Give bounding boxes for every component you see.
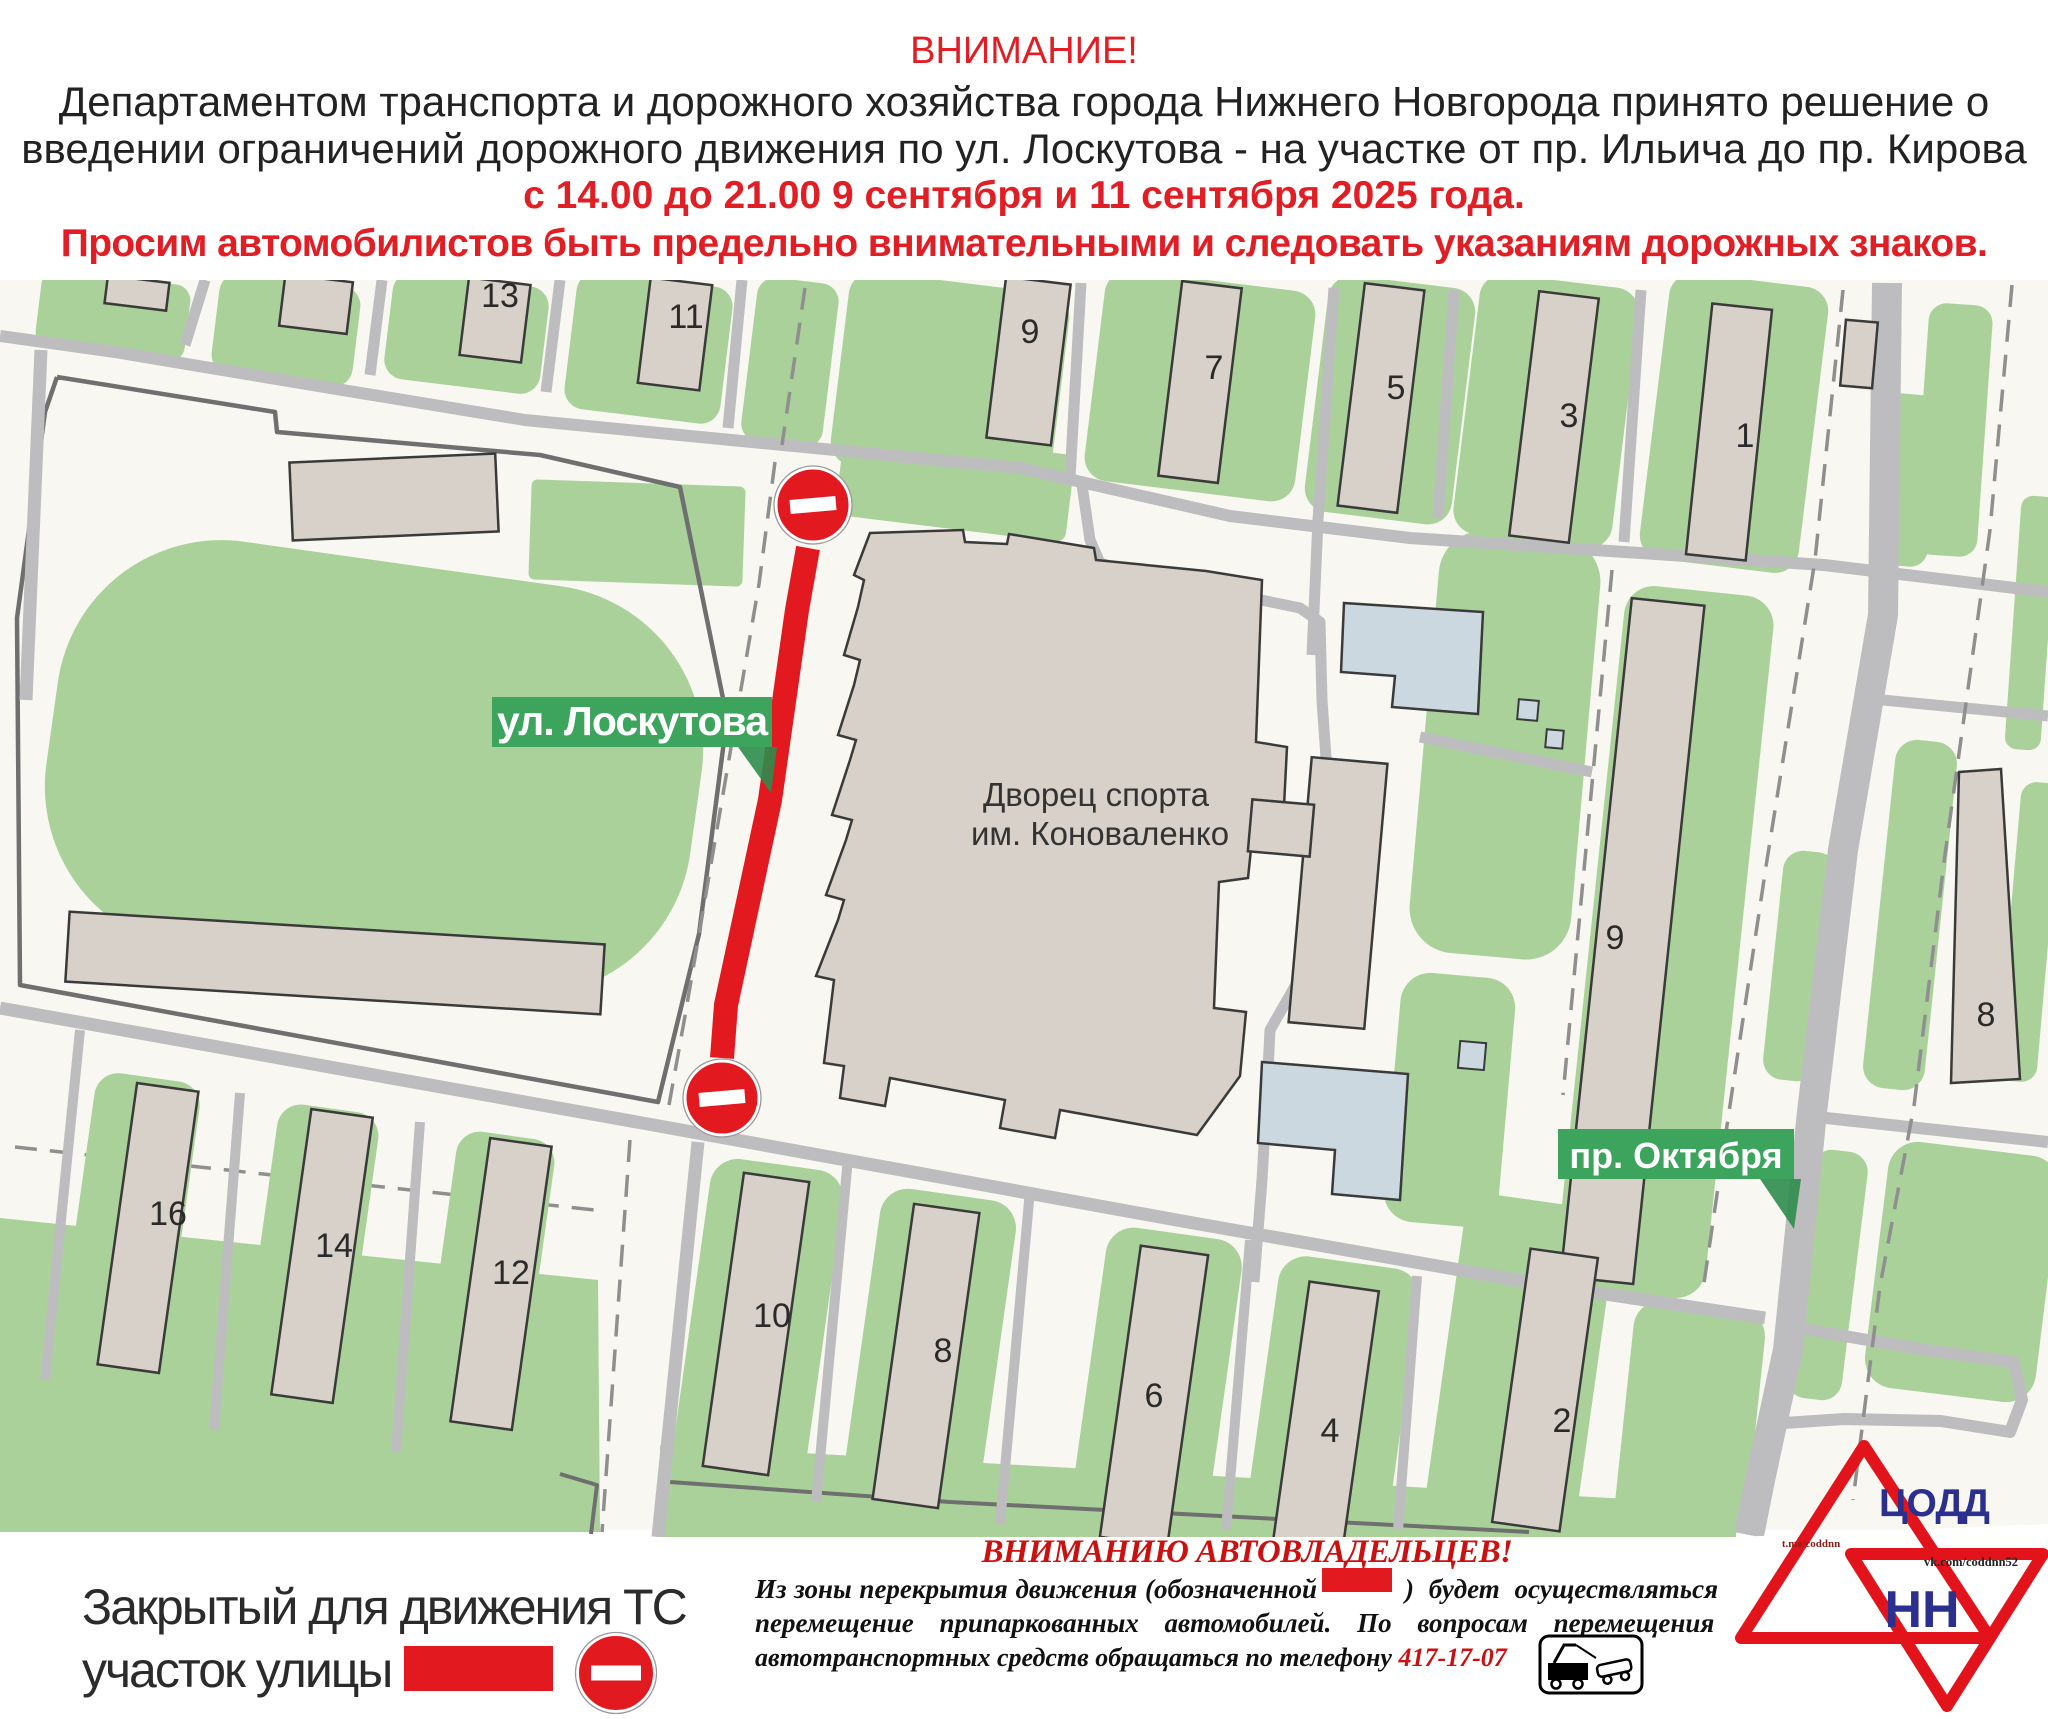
svg-text:ул. Лоскутова: ул. Лоскутова [497, 698, 769, 744]
svg-text:2: 2 [1553, 1402, 1572, 1440]
svg-text:t.me/coddnn: t.me/coddnn [1782, 1538, 1840, 1550]
svg-text:10: 10 [753, 1297, 791, 1335]
svg-text:НН: НН [1884, 1581, 1959, 1639]
svg-text:ЦОДД: ЦОДД [1879, 1482, 1990, 1525]
svg-text:3: 3 [1560, 397, 1579, 435]
svg-text:1: 1 [1736, 417, 1755, 455]
svg-text:vk.com/coddnn52: vk.com/coddnn52 [1924, 1555, 2018, 1569]
svg-text:им. Коноваленко: им. Коноваленко [971, 815, 1229, 852]
svg-text:автотранспортных средств обращ: автотранспортных средств обращаться по т… [755, 1643, 1508, 1672]
svg-text:Из зоны перекрытия движения (о: Из зоны перекрытия движения (обозначенно… [754, 1574, 1344, 1604]
svg-text:9: 9 [1021, 313, 1040, 351]
svg-text:8: 8 [1977, 996, 1996, 1034]
svg-text:14: 14 [315, 1227, 353, 1265]
svg-text:Закрытый для движения ТС: Закрытый для движения ТС [82, 1579, 687, 1635]
svg-text:7: 7 [1205, 349, 1224, 387]
svg-text:13: 13 [481, 277, 519, 315]
svg-text:4: 4 [1321, 1412, 1340, 1450]
svg-text:12: 12 [492, 1254, 530, 1292]
svg-text:6: 6 [1145, 1377, 1164, 1415]
svg-text:перемещение припаркованных авт: перемещение припаркованных автомобилей. … [755, 1608, 1714, 1638]
svg-text:пр. Октября: пр. Октября [1569, 1135, 1782, 1176]
svg-text:8: 8 [934, 1332, 953, 1370]
svg-text:16: 16 [149, 1195, 187, 1233]
svg-text:Дворец спорта: Дворец спорта [983, 776, 1210, 813]
svg-text:) будет осуществляться: ) будет осуществляться [1402, 1574, 1718, 1604]
svg-text:9: 9 [1606, 919, 1625, 957]
svg-text:участок улицы -: участок улицы - [82, 1642, 418, 1698]
svg-text:5: 5 [1387, 369, 1406, 407]
svg-text:11: 11 [668, 298, 703, 336]
svg-text:ВНИМАНИЮ АВТОВЛАДЕЛЬЦЕВ!: ВНИМАНИЮ АВТОВЛАДЕЛЬЦЕВ! [980, 1534, 1512, 1570]
